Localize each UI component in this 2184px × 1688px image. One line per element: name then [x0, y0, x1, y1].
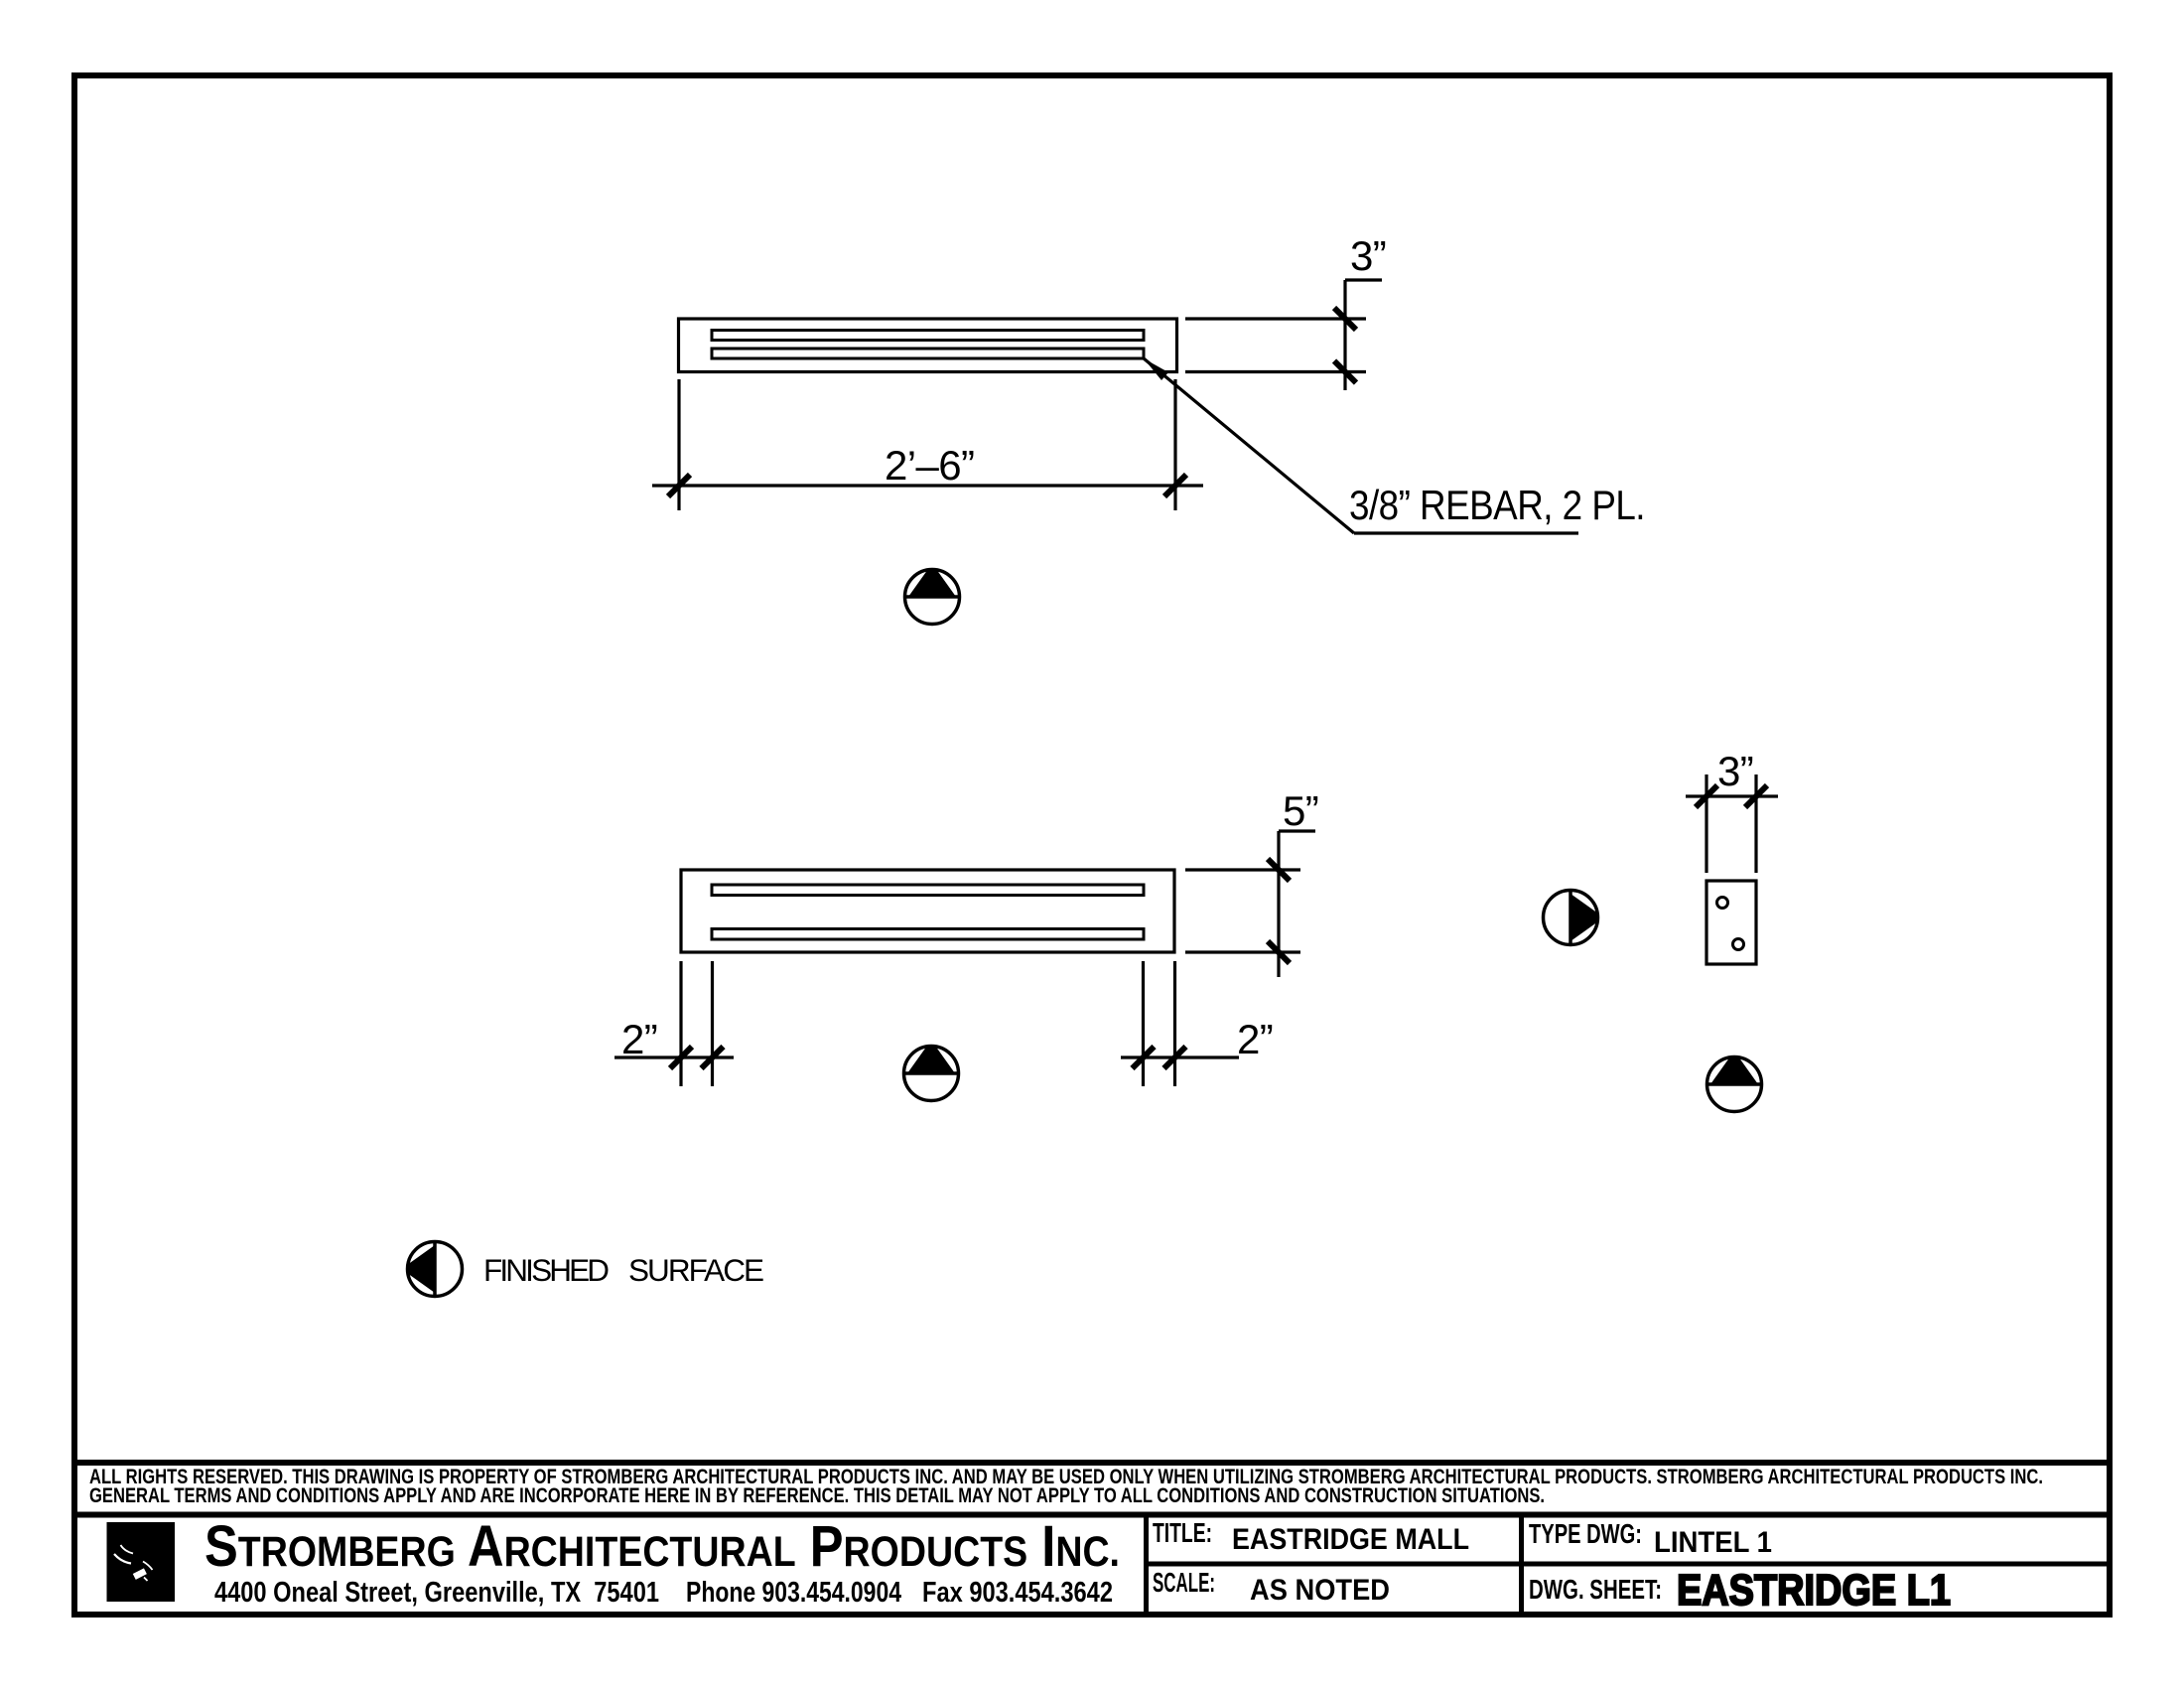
svg-text:EASTRIDGE L1: EASTRIDGE L1 — [1677, 1566, 1951, 1615]
svg-text:GENERAL TERMS AND CONDITIONS A: GENERAL TERMS AND CONDITIONS APPLY AND A… — [89, 1484, 1545, 1507]
svg-text:DWG. SHEET:: DWG. SHEET: — [1529, 1574, 1662, 1605]
svg-text:TYPE DWG:: TYPE DWG: — [1529, 1518, 1642, 1549]
svg-text:EASTRIDGE MALL: EASTRIDGE MALL — [1232, 1523, 1469, 1556]
svg-text:5”: 5” — [1283, 787, 1318, 834]
svg-text:LINTEL 1: LINTEL 1 — [1654, 1526, 1772, 1559]
svg-text:3”: 3” — [1350, 232, 1386, 279]
svg-text:2”: 2” — [621, 1016, 657, 1062]
svg-text:Phone 903.454.0904: Phone 903.454.0904 — [686, 1577, 901, 1609]
svg-text:3/8” REBAR, 2 PL.: 3/8” REBAR, 2 PL. — [1349, 482, 1645, 528]
svg-text:4400 Oneal Street, Greenville,: 4400 Oneal Street, Greenville, TX 75401 — [214, 1577, 659, 1609]
svg-text:SURFACE: SURFACE — [628, 1252, 764, 1288]
svg-text:2’–6”: 2’–6” — [885, 442, 974, 489]
svg-text:FINISHED: FINISHED — [483, 1252, 610, 1288]
svg-text:AS NOTED: AS NOTED — [1250, 1574, 1390, 1607]
svg-text:SCALE:: SCALE: — [1153, 1567, 1215, 1598]
svg-text:Fax 903.454.3642: Fax 903.454.3642 — [922, 1577, 1113, 1609]
svg-text:3”: 3” — [1717, 748, 1753, 794]
svg-text:TITLE:: TITLE: — [1153, 1517, 1212, 1548]
svg-text:2”: 2” — [1237, 1016, 1273, 1062]
